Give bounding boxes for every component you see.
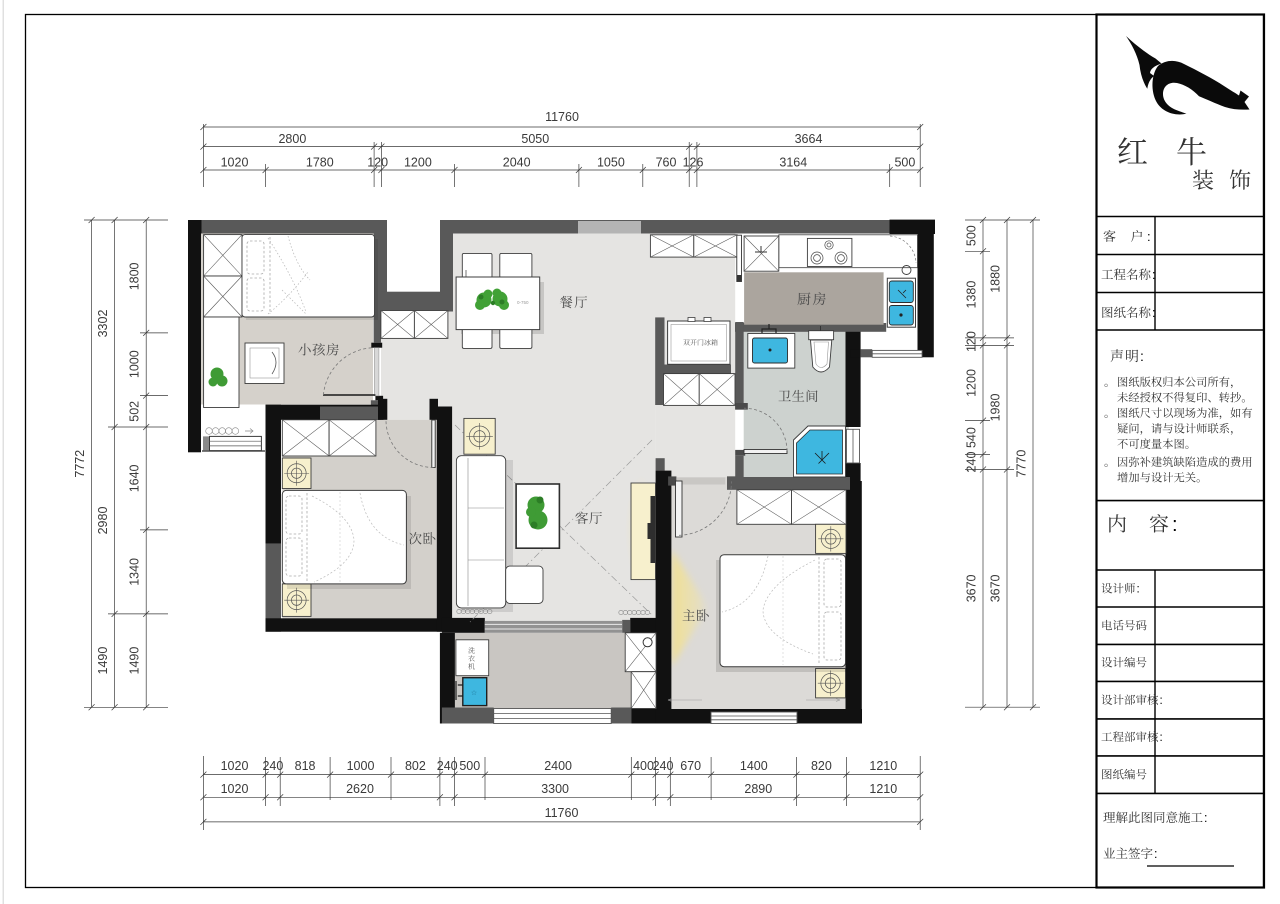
svg-text::: :: [1154, 847, 1157, 861]
svg-text:1380: 1380: [965, 281, 979, 309]
svg-text:3300: 3300: [541, 782, 569, 796]
svg-text::: :: [1172, 514, 1178, 536]
svg-text:670: 670: [680, 759, 701, 773]
svg-text:2620: 2620: [346, 782, 374, 796]
svg-text:240: 240: [965, 452, 979, 473]
svg-text:126: 126: [683, 156, 704, 170]
svg-text:1880: 1880: [989, 265, 1003, 293]
svg-text:☆: ☆: [471, 689, 477, 697]
svg-text:1000: 1000: [347, 759, 375, 773]
svg-text:3670: 3670: [965, 574, 979, 602]
svg-text:1210: 1210: [869, 759, 897, 773]
svg-text:7772: 7772: [73, 450, 87, 478]
svg-text::: :: [1140, 348, 1144, 364]
svg-text:1780: 1780: [306, 156, 334, 170]
svg-text:2040: 2040: [503, 156, 531, 170]
svg-text:1800: 1800: [128, 262, 142, 290]
svg-text:820: 820: [811, 759, 832, 773]
svg-text::: :: [1204, 811, 1207, 825]
svg-text:1980: 1980: [989, 394, 1003, 422]
svg-text:2400: 2400: [544, 759, 572, 773]
svg-text::: :: [1147, 229, 1151, 244]
svg-text:502: 502: [128, 401, 142, 422]
svg-text:240: 240: [262, 759, 283, 773]
svg-text::: :: [1160, 732, 1163, 744]
svg-text:1200: 1200: [965, 369, 979, 397]
svg-text:1490: 1490: [96, 647, 110, 675]
svg-text:240: 240: [437, 759, 458, 773]
svg-text:3670: 3670: [989, 574, 1003, 602]
svg-text::: :: [1152, 268, 1155, 282]
svg-text:0-750: 0-750: [517, 300, 529, 305]
svg-text:240: 240: [653, 759, 674, 773]
svg-text:500: 500: [965, 225, 979, 246]
svg-text:120: 120: [367, 156, 388, 170]
svg-text:1000: 1000: [128, 350, 142, 378]
svg-text:1210: 1210: [869, 782, 897, 796]
svg-text:2890: 2890: [744, 782, 772, 796]
svg-text::: :: [1152, 306, 1155, 320]
svg-text:5050: 5050: [521, 132, 549, 146]
svg-text:400: 400: [633, 759, 654, 773]
svg-text:1490: 1490: [128, 647, 142, 675]
svg-text:802: 802: [405, 759, 426, 773]
svg-text:1020: 1020: [221, 156, 249, 170]
svg-text:11760: 11760: [545, 110, 579, 124]
svg-text:11760: 11760: [545, 806, 579, 820]
svg-text:3664: 3664: [795, 132, 823, 146]
svg-text:120: 120: [965, 331, 979, 352]
svg-text:818: 818: [295, 759, 316, 773]
svg-text:500: 500: [894, 156, 915, 170]
svg-text:1020: 1020: [221, 759, 249, 773]
svg-text::: :: [1137, 584, 1140, 596]
svg-text:1640: 1640: [128, 464, 142, 492]
svg-text::: :: [1160, 695, 1163, 707]
svg-text:2980: 2980: [96, 507, 110, 535]
svg-text:1200: 1200: [404, 156, 432, 170]
svg-text:1340: 1340: [128, 558, 142, 586]
svg-text:3302: 3302: [96, 310, 110, 338]
svg-text:1050: 1050: [597, 156, 625, 170]
svg-text:2800: 2800: [278, 132, 306, 146]
svg-text:500: 500: [459, 759, 480, 773]
svg-text:540: 540: [965, 427, 979, 448]
svg-text:760: 760: [656, 156, 677, 170]
svg-text:1400: 1400: [740, 759, 768, 773]
svg-text:3164: 3164: [779, 156, 807, 170]
svg-text:7770: 7770: [1015, 450, 1029, 478]
svg-text:1020: 1020: [221, 782, 249, 796]
